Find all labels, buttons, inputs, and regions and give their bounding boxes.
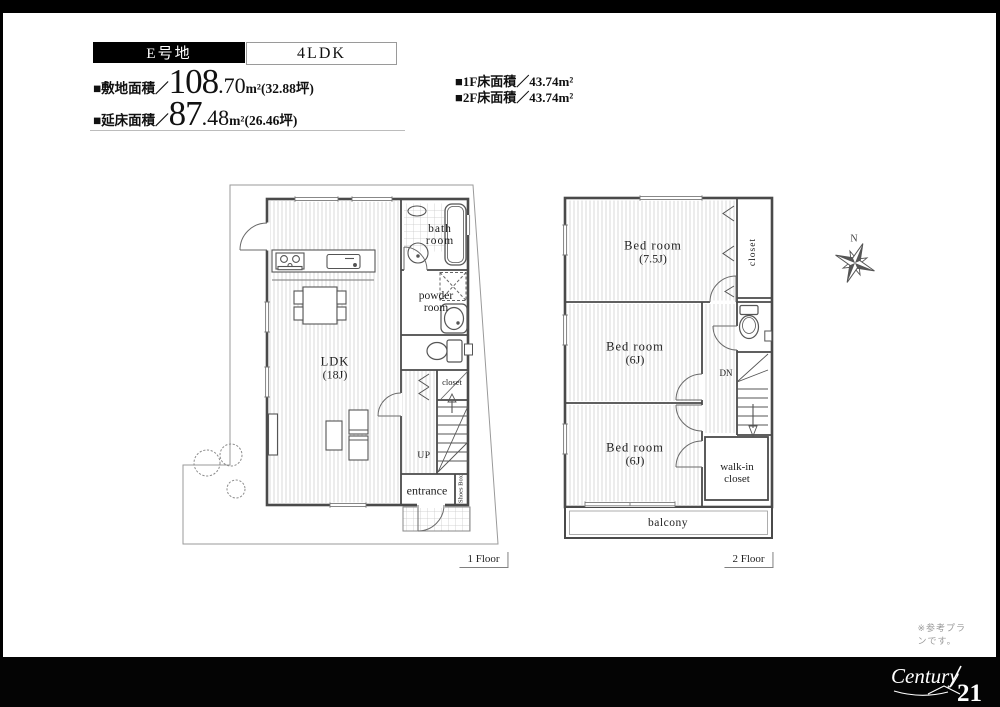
total-area-decimal: .48 — [202, 107, 230, 129]
room-label-walkin-2: closet — [724, 473, 750, 485]
floor-plan-page: { "colors": { "frame": "#000000", "badge… — [0, 0, 1000, 707]
lot-badge: E号地 — [93, 42, 245, 63]
room-label-bath-2: room — [426, 235, 454, 247]
total-area-unit: m²(26.46坪) — [229, 109, 297, 129]
room-label-bed3-size: (6J) — [626, 454, 645, 469]
room-label-bath-1: bath — [428, 223, 452, 235]
room-label-powder-1: powder — [419, 290, 454, 302]
century21-logo-icon: Century 21 — [890, 659, 990, 705]
room-label-entrance: entrance — [407, 484, 448, 499]
total-area-label: ■延床面積／ — [93, 109, 169, 129]
header-divider — [90, 130, 405, 131]
room-label-ldk-size: (18J) — [323, 368, 348, 383]
site-area-unit: m²(32.88坪) — [246, 77, 314, 97]
stairs-down-label: DN — [720, 368, 733, 378]
brand-script-text: Century — [891, 664, 959, 688]
site-area-row: ■敷地面積／108.70m²(32.88坪) — [93, 64, 314, 99]
brand-number-text: 21 — [957, 680, 982, 705]
compass-north-label: N — [850, 234, 857, 245]
room-label-shoes-box: Shoes Box — [458, 475, 465, 503]
floor2-area-text: ■2F床面積／43.74m² — [455, 87, 573, 106]
site-area-label: ■敷地面積／ — [93, 77, 169, 97]
floor1-caption: 1 Floor — [459, 552, 508, 568]
room-label-closet-2f: closet — [748, 238, 758, 266]
site-area-decimal: .70 — [218, 75, 246, 97]
room-label-bed1-size: (7.5J) — [639, 252, 667, 267]
room-label-bed2-size: (6J) — [626, 353, 645, 368]
stairs-up-label: UP — [417, 451, 430, 461]
plan-type-badge: 4LDK — [246, 42, 397, 65]
room-label-balcony: balcony — [648, 517, 688, 529]
room-label-powder-2: room — [424, 302, 448, 314]
total-area-row: ■延床面積／87.48m²(26.46坪) — [93, 96, 297, 131]
room-label-walkin-1: walk-in — [720, 461, 754, 473]
reference-plan-note: ※参考プランです。 — [918, 621, 973, 647]
total-area-value: 87 — [169, 96, 202, 131]
footer-bar: Century 21 — [0, 657, 1000, 707]
room-label-closet-1f: closet — [442, 377, 462, 387]
floor2-caption: 2 Floor — [724, 552, 773, 568]
